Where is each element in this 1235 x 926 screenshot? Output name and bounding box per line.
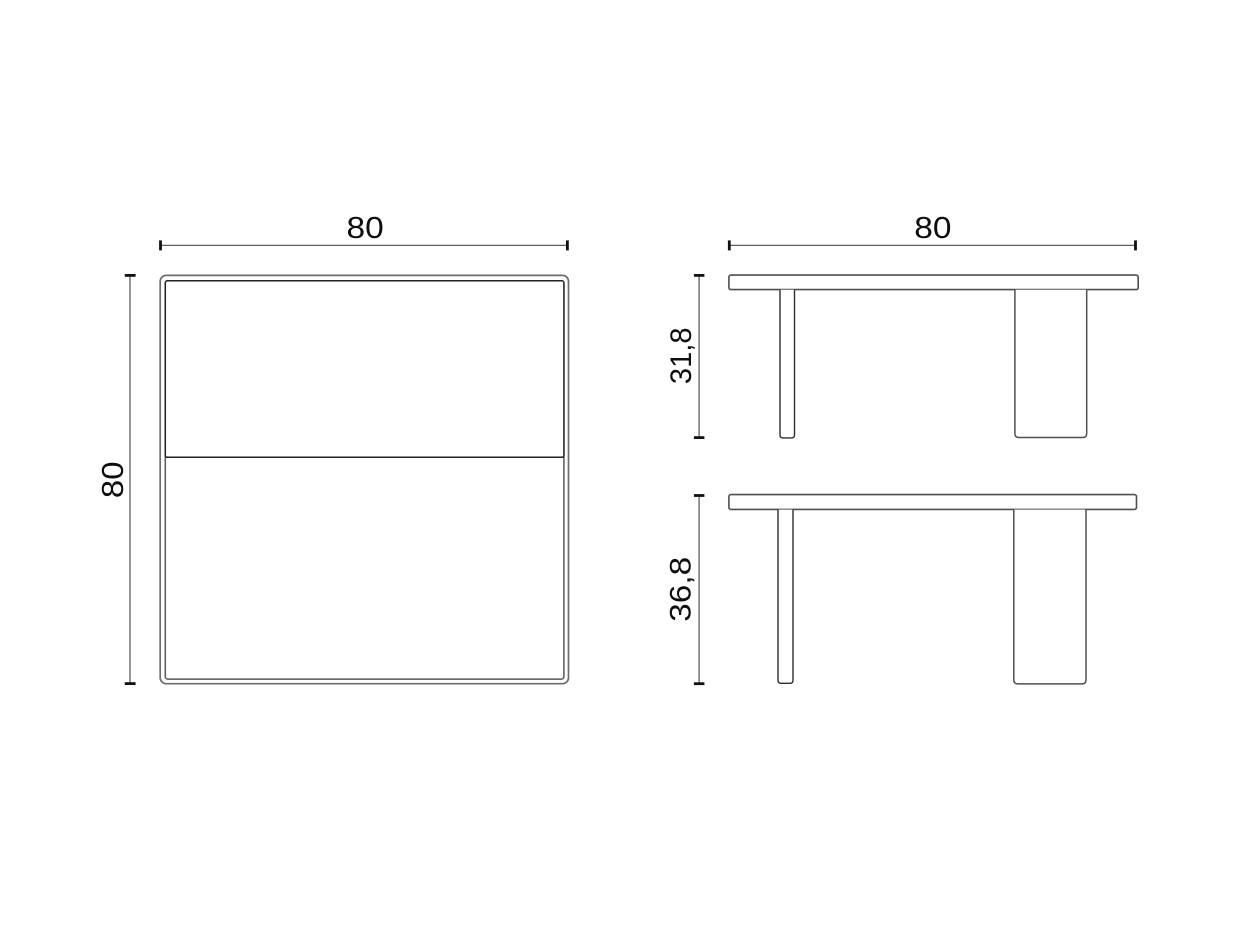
svg-text:80: 80: [95, 462, 130, 499]
svg-text:31,8: 31,8: [665, 327, 698, 384]
svg-text:80: 80: [914, 210, 951, 245]
svg-text:80: 80: [346, 210, 383, 245]
svg-text:36,8: 36,8: [663, 557, 697, 622]
